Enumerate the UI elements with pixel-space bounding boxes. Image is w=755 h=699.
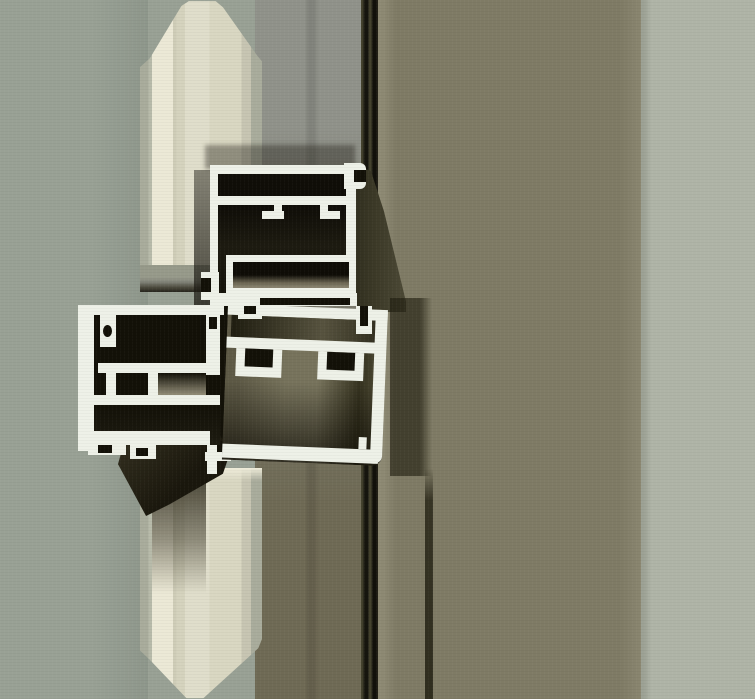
- transom-tab-left-slot: [244, 306, 256, 314]
- transom-lower-chamber: [226, 255, 356, 295]
- sill-web-b: [148, 373, 158, 395]
- transom-profile: [210, 163, 358, 308]
- transom-upper-divider: [215, 196, 350, 205]
- product-photo: [0, 0, 755, 699]
- screw-slot-left-cavity: [245, 348, 274, 367]
- background-wall-right: [641, 0, 755, 699]
- shadow-right-of-mullion-box: [390, 298, 432, 476]
- sill-lower-divider: [94, 395, 220, 405]
- transom-top-hook-slot: [354, 170, 366, 182]
- transom-c-hook-slot: [201, 278, 211, 292]
- sill-right-notch: [209, 317, 217, 329]
- sill-left-wall: [78, 305, 94, 451]
- sill-profile: [78, 305, 224, 457]
- sill-top-wall: [78, 305, 224, 315]
- transom-top-wall: [210, 165, 357, 174]
- sill-small-chamber: [158, 373, 206, 395]
- transom-l-hook-bar: [320, 211, 340, 219]
- mullion-edge-seam: [425, 468, 433, 699]
- sill-foot-slot: [98, 445, 112, 453]
- sill-mid-divider: [98, 363, 220, 373]
- sill-bead-clip-slot: [136, 448, 148, 456]
- transom-t-hook-bar: [262, 211, 284, 219]
- transom-tab-right-slot: [360, 306, 368, 326]
- screw-slot-right-cavity: [327, 352, 356, 371]
- transom-bottom-groove: [260, 298, 350, 305]
- screw-boss-hole: [103, 325, 112, 337]
- sill-web-a: [106, 373, 116, 395]
- box-corner-lip: [358, 437, 366, 449]
